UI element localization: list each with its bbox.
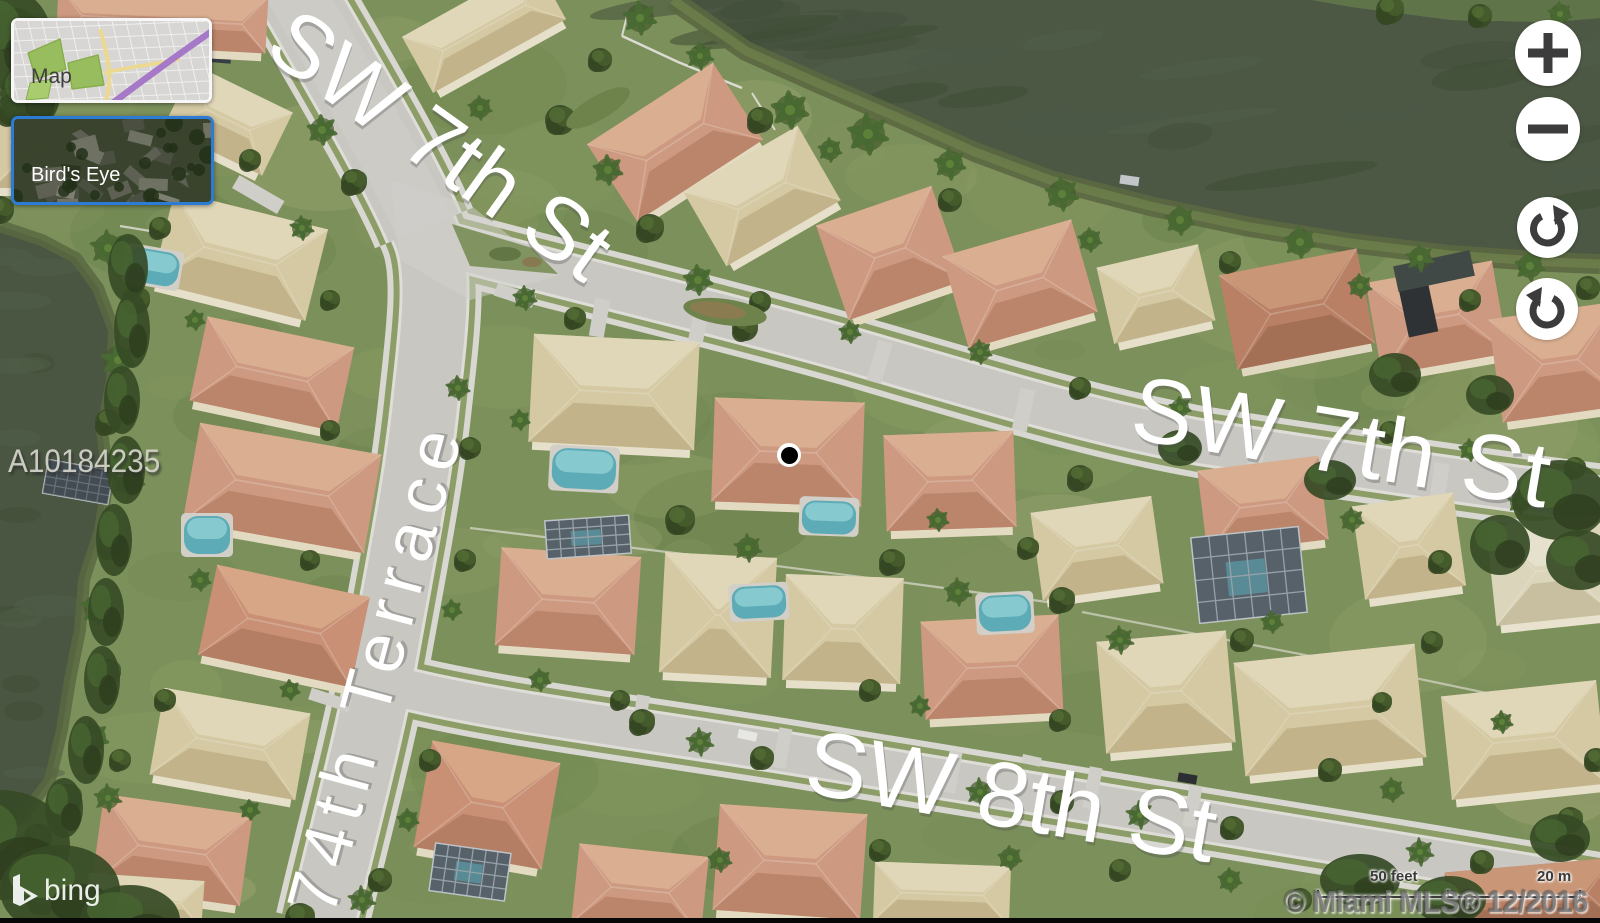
svg-text:Map: Map [31, 65, 72, 88]
svg-text:bing: bing [44, 874, 101, 907]
svg-text:Bird's Eye: Bird's Eye [31, 164, 120, 186]
